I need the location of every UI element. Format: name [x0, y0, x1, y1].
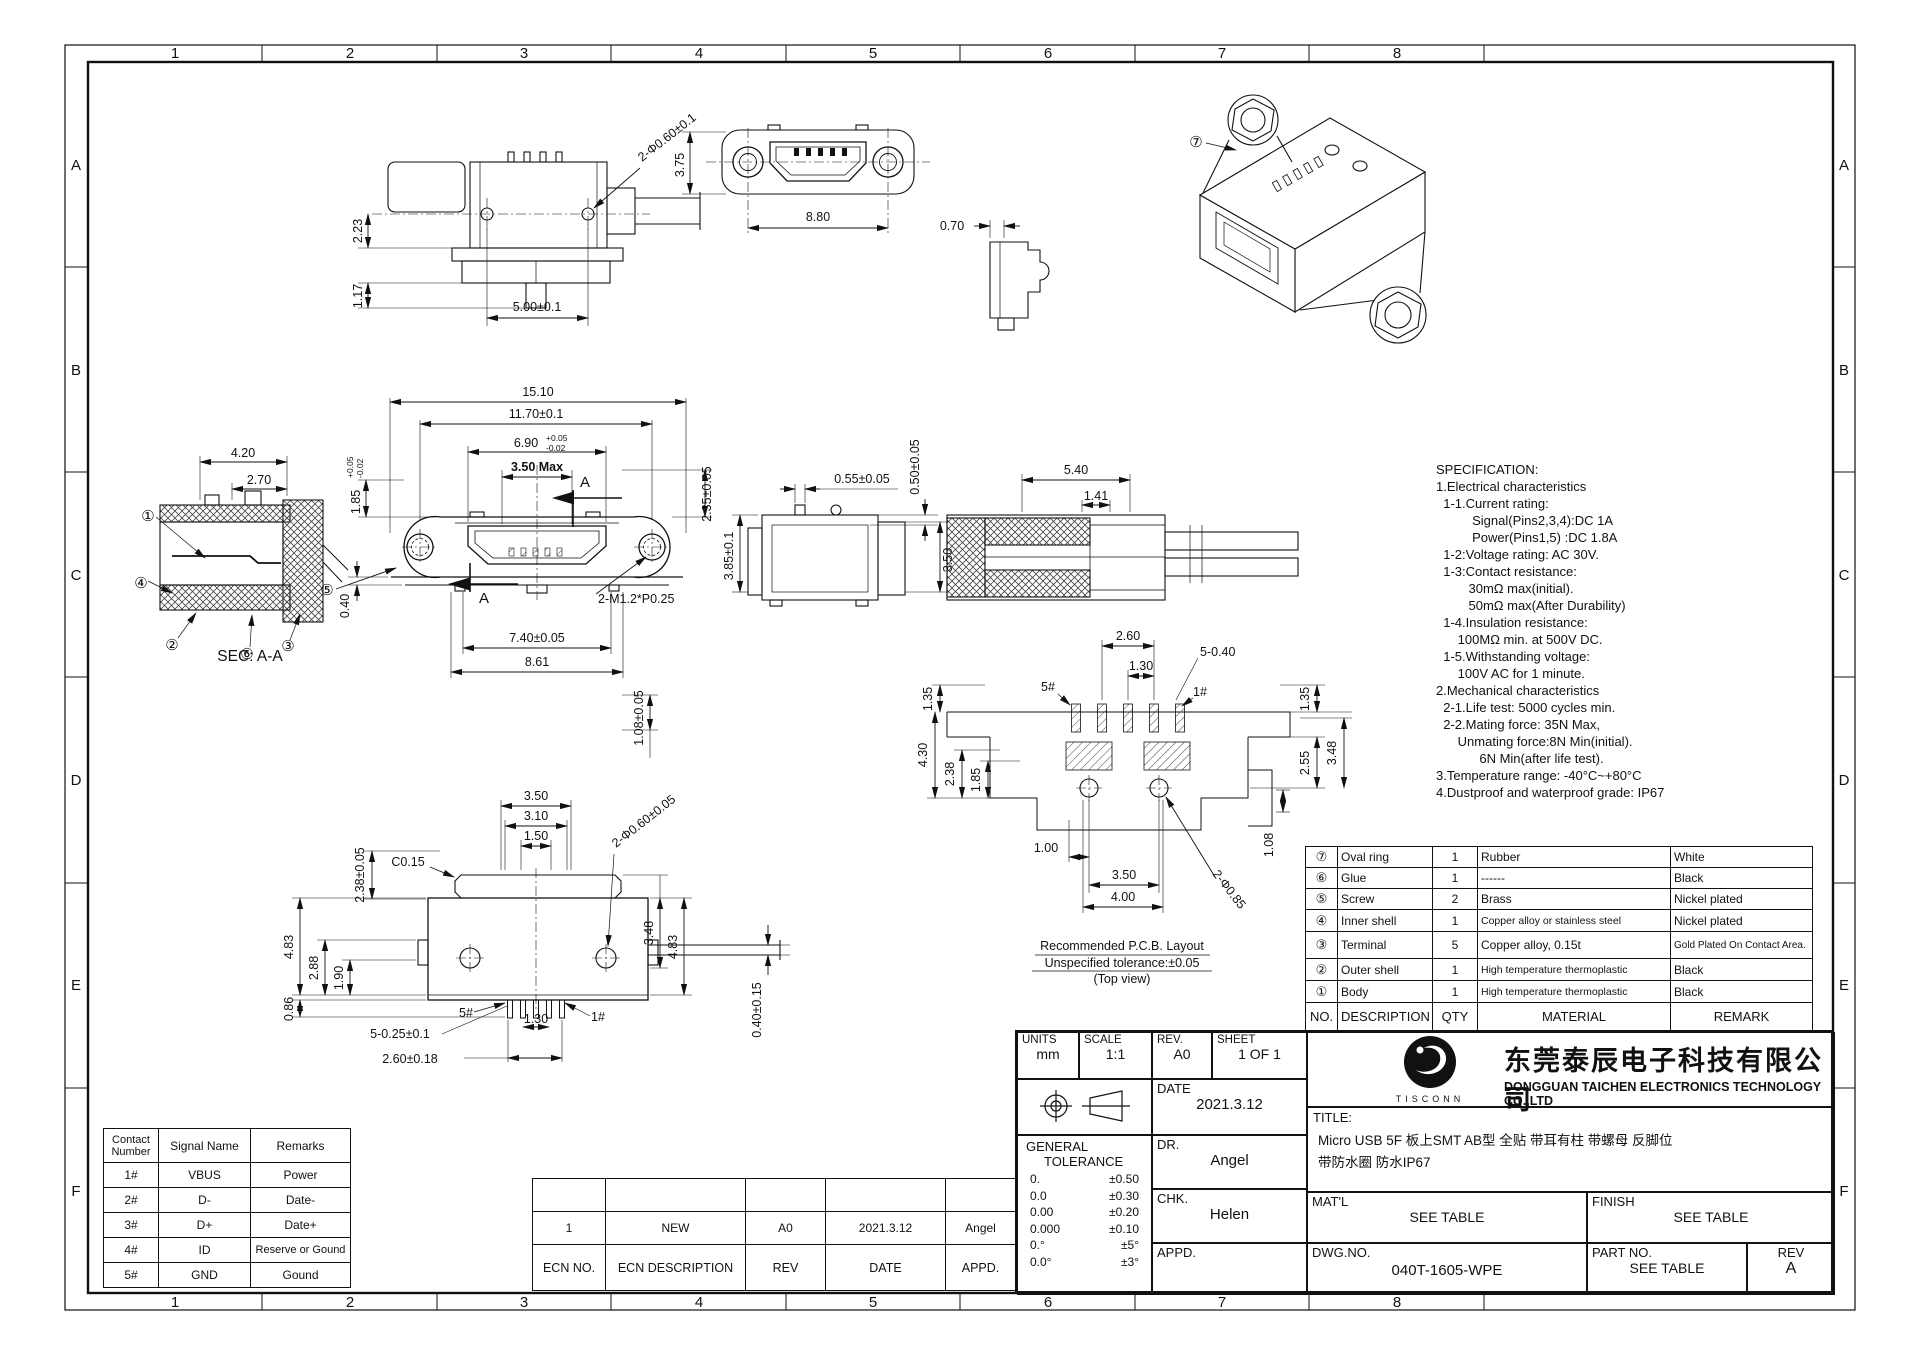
view-caption: (Top view)	[1094, 972, 1151, 986]
dim-label: 11.70±0.1	[509, 407, 564, 421]
grid-col-label: 4	[695, 45, 703, 62]
rev-value: A0	[1153, 1046, 1211, 1062]
dim-label: 1.90	[332, 966, 346, 990]
grid-col-label: 8	[1393, 1294, 1401, 1311]
tolerance-value: ±0.50	[1109, 1171, 1139, 1188]
tolerance-row: 0.0° ±3°	[1018, 1254, 1151, 1271]
spec-line: Power(Pins1,5) :DC 1.8A	[1436, 529, 1846, 546]
spec-line: 1.Electrical characteristics	[1436, 478, 1846, 495]
matl-label: MAT'L	[1308, 1193, 1586, 1209]
bom-cell-description: Terminal	[1338, 932, 1433, 959]
part-no-cell: PART NO. SEE TABLE	[1587, 1243, 1747, 1295]
dim-label: 3.50	[1112, 868, 1136, 882]
view-caption: Recommended P.C.B. Layout	[1040, 939, 1204, 953]
pcb-layout-view	[927, 640, 1352, 971]
ecn-table-grid: 1 NEW A0 2021.3.12 Angel ECN NO. ECN DES…	[532, 1178, 1016, 1291]
bom-cell-remark: Nickel plated	[1671, 889, 1813, 910]
dim-label: 0.70	[940, 219, 964, 233]
bom-cell-description: Oval ring	[1338, 847, 1433, 868]
dim-label: 2-Φ0.85	[1210, 867, 1249, 911]
dim-label: 1.08	[1262, 833, 1276, 857]
spec-line: 1-2:Voltage rating: AC 30V.	[1436, 546, 1846, 563]
title-line1: Micro USB 5F 板上SMT AB型 全贴 带耳有柱 带螺母 反脚位	[1308, 1125, 1834, 1149]
scale-cell: SCALE 1:1	[1079, 1032, 1152, 1079]
dim-label: 2-Φ0.60±0.1	[635, 110, 699, 164]
rev2-label: REV	[1748, 1244, 1834, 1260]
spec-line: 100MΩ min. at 500V DC.	[1436, 631, 1846, 648]
bom-header-qty: QTY	[1433, 1003, 1478, 1031]
logo-text: TISCONN	[1396, 1094, 1465, 1104]
contact-cell-number: 4#	[104, 1238, 159, 1263]
contact-cell-number: 1#	[104, 1163, 159, 1188]
bom-cell-remark: Black	[1671, 868, 1813, 889]
ecn-cell-description: NEW	[606, 1212, 746, 1245]
ecn-header-no: ECN NO.	[533, 1245, 606, 1291]
title-line2: 带防水圈 防水IP67	[1308, 1149, 1834, 1171]
projection-cell	[1017, 1079, 1152, 1135]
dim-label: 2.70	[247, 473, 271, 487]
bom-cell-qty: 1	[1433, 847, 1478, 868]
dim-label: 4.83	[666, 935, 680, 959]
units-value: mm	[1018, 1046, 1078, 1062]
grid-col-label: 8	[1393, 45, 1401, 62]
dim-label: 5.00±0.1	[513, 300, 562, 314]
ecn-cell-rev: A0	[746, 1212, 826, 1245]
side-sect-dims: 5.40 1.41	[1064, 463, 1108, 503]
grid-col-label: 4	[695, 1294, 703, 1311]
bom-table-grid: ⑦ Oval ring 1 Rubber White ⑥ Glue 1 ----…	[1305, 846, 1813, 1031]
grid-col-label: 1	[171, 45, 179, 62]
specification-block: SPECIFICATION: 1.Electrical characterist…	[1436, 461, 1846, 801]
tolerance-value: ±0.30	[1109, 1188, 1139, 1205]
spec-line: 100V AC for 1 minute.	[1436, 665, 1846, 682]
dim-label: 1.08±0.05	[632, 690, 646, 746]
dim-label: 2.60±0.18	[382, 1052, 438, 1066]
dim-label: 5-0.25±0.1	[370, 1027, 430, 1041]
company-logo: TISCONN	[1370, 1034, 1490, 1107]
bom-cell-material: High temperature thermoplastic	[1478, 981, 1671, 1003]
contact-cell-signal: VBUS	[159, 1163, 251, 1188]
table-row: ③ Terminal 5 Copper alloy, 0.15t Gold Pl…	[1306, 932, 1813, 959]
contact-cell-signal: D+	[159, 1213, 251, 1238]
table-row: ④ Inner shell 1 Copper alloy or stainles…	[1306, 910, 1813, 932]
bom-cell-qty: 5	[1433, 932, 1478, 959]
contact-header-number: Contact Number	[104, 1129, 159, 1163]
spec-line: 3.Temperature range: -40°C~+80°C	[1436, 767, 1846, 784]
dim-label: 0.55±0.05	[834, 472, 890, 486]
date-label: DATE	[1153, 1080, 1306, 1096]
grid-row-label: A	[1839, 157, 1849, 174]
spec-line: 1-3:Contact resistance:	[1436, 563, 1846, 580]
contact-cell-remarks: Date-	[251, 1188, 351, 1213]
bom-header-description: DESCRIPTION	[1338, 1003, 1433, 1031]
pin-label: 1#	[1193, 685, 1207, 699]
matl-value: SEE TABLE	[1308, 1209, 1586, 1225]
tolerance-nominal: 0.0	[1030, 1188, 1047, 1205]
contact-header-remarks: Remarks	[251, 1129, 351, 1163]
dim-label: 1.50	[524, 829, 548, 843]
side-mid-dims: 0.55±0.05 0.50±0.05 3.85±0.1 3.50	[722, 439, 955, 580]
table-row	[533, 1179, 1016, 1212]
dim-label: 15.10	[522, 385, 553, 399]
ecn-cell	[746, 1179, 826, 1212]
dim-label: 4.00	[1111, 890, 1135, 904]
units-label: UNITS	[1018, 1033, 1078, 1046]
dim-label: 1.35	[1298, 687, 1312, 711]
grid-row-label: A	[71, 157, 81, 174]
grid-col-label: 6	[1044, 45, 1052, 62]
tolerance-value: ±3°	[1121, 1254, 1139, 1271]
bom-header-material: MATERIAL	[1478, 1003, 1671, 1031]
bom-cell-no: ④	[1306, 910, 1338, 932]
spec-line: 50mΩ max(After Durability)	[1436, 597, 1846, 614]
bom-cell-no: ⑦	[1306, 847, 1338, 868]
bom-cell-no: ⑤	[1306, 889, 1338, 910]
table-row: ⑥ Glue 1 ------ Black	[1306, 868, 1813, 889]
bom-table: ⑦ Oval ring 1 Rubber White ⑥ Glue 1 ----…	[1305, 846, 1813, 1031]
front-main-dims: 15.10 11.70±0.1 6.90 +0.05 -0.02 3.50 Ma…	[320, 385, 714, 746]
pcb-layout-dims: 2.60 1.30 5-0.40 1.35 4.30 2.38 1.85 1.3…	[916, 629, 1339, 986]
pin-label: 5#	[459, 1006, 473, 1020]
chk-label: CHK.	[1153, 1190, 1306, 1206]
dim-label: 2.38	[943, 762, 957, 786]
dwg-no-value: 040T-1605-WPE	[1308, 1262, 1586, 1279]
contact-table: Contact Number Signal Name Remarks 1# VB…	[103, 1128, 351, 1288]
spec-line: Signal(Pins2,3,4):DC 1A	[1436, 512, 1846, 529]
dim-tolerance: -0.02	[355, 458, 365, 478]
dwg-no-cell: DWG.NO. 040T-1605-WPE	[1307, 1243, 1587, 1295]
finish-value: SEE TABLE	[1588, 1209, 1834, 1225]
chk-value: Helen	[1153, 1206, 1306, 1223]
part-no-label: PART NO.	[1588, 1244, 1746, 1260]
contact-cell-number: 2#	[104, 1188, 159, 1213]
dim-label: 5-0.40	[1200, 645, 1235, 659]
tolerance-nominal: 0.00	[1030, 1204, 1053, 1221]
ecn-header-date: DATE	[826, 1245, 946, 1291]
table-row: 5# GND Gound	[104, 1263, 351, 1288]
ref-balloon: ⑦	[1189, 134, 1202, 151]
ecn-header-appd: APPD.	[946, 1245, 1016, 1291]
ref-balloon: ④	[134, 575, 147, 592]
bom-cell-material: ------	[1478, 868, 1671, 889]
general-tolerance-label-1: GENERAL	[1018, 1136, 1151, 1154]
table-header-row: Contact Number Signal Name Remarks	[104, 1129, 351, 1163]
bom-cell-description: Body	[1338, 981, 1433, 1003]
table-row: ② Outer shell 1 High temperature thermop…	[1306, 959, 1813, 981]
ecn-cell	[946, 1179, 1016, 1212]
contact-table-grid: Contact Number Signal Name Remarks 1# VB…	[103, 1128, 351, 1288]
contact-cell-signal: ID	[159, 1238, 251, 1263]
front-top-dims: 3.75 8.80	[673, 153, 830, 224]
table-row: 4# ID Reserve or Gound	[104, 1238, 351, 1263]
table-header-row: NO. DESCRIPTION QTY MATERIAL REMARK	[1306, 1003, 1813, 1031]
dim-label: 2.55	[1298, 751, 1312, 775]
bom-header-no: NO.	[1306, 1003, 1338, 1031]
bom-cell-material: Brass	[1478, 889, 1671, 910]
bottom-view-dims: 3.50 3.10 1.50 C0.15 2-Φ0.60±0.05 2.38±0…	[282, 789, 764, 1066]
bom-cell-material: Copper alloy or stainless steel	[1478, 910, 1671, 932]
bom-cell-qty: 2	[1433, 889, 1478, 910]
dim-label: 3.75	[673, 153, 687, 177]
bom-cell-no: ⑥	[1306, 868, 1338, 889]
units-cell: UNITS mm	[1017, 1032, 1079, 1079]
grid-row-label: E	[71, 977, 81, 994]
dr-cell: DR. Angel	[1152, 1135, 1307, 1189]
pin-label: 5#	[1041, 680, 1055, 694]
contact-cell-remarks: Power	[251, 1163, 351, 1188]
dim-label: 1.30	[524, 1012, 548, 1026]
scale-value: 1:1	[1080, 1046, 1151, 1062]
dim-label: 4.20	[231, 446, 255, 460]
chk-cell: CHK. Helen	[1152, 1189, 1307, 1243]
dim-label: 0.40±0.15	[750, 982, 764, 1038]
table-row: ⑤ Screw 2 Brass Nickel plated	[1306, 889, 1813, 910]
ecn-cell-date: 2021.3.12	[826, 1212, 946, 1245]
tolerance-row: 0.0 ±0.30	[1018, 1188, 1151, 1205]
spec-line: 2-1.Life test: 5000 cycles min.	[1436, 699, 1846, 716]
title-block: UNITS mm SCALE 1:1 REV. A0 SHEET 1 OF 1 …	[1015, 1030, 1833, 1293]
ecn-cell	[826, 1179, 946, 1212]
dim-label: 2-Φ0.60±0.05	[609, 792, 678, 850]
sheet-cell: SHEET 1 OF 1	[1212, 1032, 1307, 1079]
dim-label: C0.15	[391, 855, 424, 869]
ecn-cell	[606, 1179, 746, 1212]
tolerance-value: ±0.20	[1109, 1204, 1139, 1221]
general-tolerance-label-2: TOLERANCE	[1018, 1154, 1151, 1171]
dim-label: 1.41	[1084, 489, 1108, 503]
table-row: ① Body 1 High temperature thermoplastic …	[1306, 981, 1813, 1003]
grid-row-label: E	[1839, 977, 1849, 994]
grid-col-label: 2	[346, 45, 354, 62]
bom-cell-qty: 1	[1433, 868, 1478, 889]
date-value: 2021.3.12	[1153, 1096, 1306, 1113]
dr-label: DR.	[1153, 1136, 1306, 1152]
ecn-header-rev: REV	[746, 1245, 826, 1291]
spec-line: 2-2.Mating force: 35N Max,	[1436, 716, 1846, 733]
dim-label: 1.85	[349, 490, 363, 514]
dim-label: 0.86	[282, 997, 296, 1021]
sheet-label: SHEET	[1213, 1033, 1306, 1046]
grid-row-label: B	[71, 362, 81, 379]
bom-cell-description: Glue	[1338, 868, 1433, 889]
appd-cell: APPD.	[1152, 1243, 1307, 1295]
bom-cell-remark: Black	[1671, 959, 1813, 981]
table-row: 1 NEW A0 2021.3.12 Angel	[533, 1212, 1016, 1245]
view-caption: SEC: A-A	[217, 648, 283, 665]
dim-label: 4.83	[282, 935, 296, 959]
dim-label: 3.48	[1325, 741, 1339, 765]
dim-tolerance: +0.05	[546, 433, 568, 443]
bom-cell-remark: White	[1671, 847, 1813, 868]
grid-col-label: 7	[1218, 1294, 1226, 1311]
bom-cell-description: Outer shell	[1338, 959, 1433, 981]
dim-label: 0.40	[338, 594, 352, 618]
ref-balloon: ⑤	[320, 582, 333, 599]
dr-value: Angel	[1153, 1152, 1306, 1169]
bom-cell-description: Screw	[1338, 889, 1433, 910]
ref-balloon: ②	[165, 637, 178, 654]
dim-label: 3.48	[642, 921, 656, 945]
bom-cell-no: ②	[1306, 959, 1338, 981]
side-small-view	[974, 220, 1049, 330]
section-label: A	[479, 590, 489, 607]
side-sect-view	[947, 474, 1298, 600]
table-header-row: ECN NO. ECN DESCRIPTION REV DATE APPD.	[533, 1245, 1016, 1291]
dim-label: 5.40	[1064, 463, 1088, 477]
bom-cell-qty: 1	[1433, 981, 1478, 1003]
company-name-en: DONGGUAN TAICHEN ELECTRONICS TECHNOLOGY …	[1504, 1080, 1834, 1108]
part-no-value: SEE TABLE	[1588, 1260, 1746, 1276]
grid-col-label: 6	[1044, 1294, 1052, 1311]
contact-cell-remarks: Date+	[251, 1213, 351, 1238]
dim-label: 1.17	[351, 284, 365, 308]
dim-label: 4.30	[916, 743, 930, 767]
ecn-table: 1 NEW A0 2021.3.12 Angel ECN NO. ECN DES…	[532, 1178, 1016, 1291]
dim-label: 3.10	[524, 809, 548, 823]
tolerance-value: ±0.10	[1109, 1221, 1139, 1238]
dim-label: 8.61	[525, 655, 549, 669]
table-row: 3# D+ Date+	[104, 1213, 351, 1238]
dim-label: 3.50	[524, 789, 548, 803]
finish-cell: FINISH SEE TABLE	[1587, 1192, 1835, 1243]
spec-line: 1-1.Current rating:	[1436, 495, 1846, 512]
grid-col-label: 3	[520, 45, 528, 62]
tolerance-nominal: 0.0°	[1030, 1254, 1051, 1271]
title-label: TITLE:	[1308, 1108, 1834, 1125]
contact-cell-remarks: Gound	[251, 1263, 351, 1288]
spec-line: 4.Dustproof and waterproof grade: IP67	[1436, 784, 1846, 801]
bom-cell-qty: 1	[1433, 910, 1478, 932]
rev-label: REV.	[1153, 1033, 1211, 1046]
dim-label: 1.00	[1034, 841, 1058, 855]
tolerance-nominal: 0.	[1030, 1171, 1040, 1188]
dim-label: 1.85	[969, 768, 983, 792]
bom-cell-no: ①	[1306, 981, 1338, 1003]
finish-label: FINISH	[1588, 1193, 1834, 1209]
bom-cell-material: Copper alloy, 0.15t	[1478, 932, 1671, 959]
appd-label: APPD.	[1153, 1244, 1306, 1260]
scale-label: SCALE	[1080, 1033, 1151, 1046]
spec-line: 6N Min(after life test).	[1436, 750, 1846, 767]
bom-header-remark: REMARK	[1671, 1003, 1813, 1031]
contact-header-signal: Signal Name	[159, 1129, 251, 1163]
general-tolerance-cell: GENERAL TOLERANCE 0. ±0.50 0.0 ±0.30 0.0…	[1017, 1135, 1152, 1295]
projection-symbols-icon	[1018, 1080, 1148, 1132]
dim-label: 2.88	[307, 956, 321, 980]
rev2-cell: REV A	[1747, 1243, 1835, 1295]
section-label: A	[580, 474, 590, 491]
grid-row-label: F	[71, 1183, 80, 1200]
company-cell: TISCONN 东莞泰辰电子科技有限公司 DONGGUAN TAICHEN EL…	[1307, 1032, 1835, 1107]
rev2-value: A	[1748, 1260, 1834, 1278]
grid-row-label: C	[71, 567, 82, 584]
dim-label: 1.30	[1129, 659, 1153, 673]
spec-line: 2.Mechanical characteristics	[1436, 682, 1846, 699]
dim-label: 1.35	[921, 687, 935, 711]
dim-label: 2.60	[1116, 629, 1140, 643]
grid-col-label: 2	[346, 1294, 354, 1311]
dim-label: 7.40±0.05	[509, 631, 565, 645]
ref-balloon: ③	[281, 638, 294, 655]
tolerance-nominal: 0.°	[1030, 1237, 1045, 1254]
bom-cell-no: ③	[1306, 932, 1338, 959]
pin-label: 1#	[591, 1010, 605, 1024]
date-cell: DATE 2021.3.12	[1152, 1079, 1307, 1135]
contact-cell-number: 3#	[104, 1213, 159, 1238]
dim-label: 3.85±0.1	[722, 532, 736, 581]
dim-label: 2.23	[351, 219, 365, 243]
contact-cell-signal: D-	[159, 1188, 251, 1213]
contact-cell-signal: GND	[159, 1263, 251, 1288]
ecn-header-description: ECN DESCRIPTION	[606, 1245, 746, 1291]
spec-line: 1-4.Insulation resistance:	[1436, 614, 1846, 631]
table-row: 2# D- Date-	[104, 1188, 351, 1213]
tolerance-row: 0.000 ±0.10	[1018, 1221, 1151, 1238]
dwg-no-label: DWG.NO.	[1308, 1244, 1371, 1260]
dim-label: 0.50±0.05	[908, 439, 922, 495]
tolerance-row: 0. ±0.50	[1018, 1171, 1151, 1188]
bom-cell-remark: Nickel plated	[1671, 910, 1813, 932]
dim-label: 3.50 Max	[511, 460, 563, 474]
dim-label: 2.38±0.05	[353, 847, 367, 903]
spec-line: 30mΩ max(initial).	[1436, 580, 1846, 597]
view-caption: Unspecified tolerance:±0.05	[1045, 956, 1200, 970]
table-row: ⑦ Oval ring 1 Rubber White	[1306, 847, 1813, 868]
dim-label: 2-M1.2*P0.25	[598, 592, 674, 606]
bom-cell-remark: Black	[1671, 981, 1813, 1003]
spec-line: Unmating force:8N Min(initial).	[1436, 733, 1846, 750]
front-main-view	[336, 398, 712, 758]
ecn-cell	[533, 1179, 606, 1212]
ecn-cell-no: 1	[533, 1212, 606, 1245]
bom-cell-material: High temperature thermoplastic	[1478, 959, 1671, 981]
contact-cell-remarks: Reserve or Gound	[251, 1238, 351, 1263]
tolerance-row: 0.° ±5°	[1018, 1237, 1151, 1254]
grid-col-label: 1	[171, 1294, 179, 1311]
grid-col-label: 5	[869, 1294, 877, 1311]
grid-col-label: 7	[1218, 45, 1226, 62]
grid-row-label: D	[71, 772, 82, 789]
dim-label: 2.35±0.05	[700, 466, 714, 522]
title-cell: TITLE: Micro USB 5F 板上SMT AB型 全贴 带耳有柱 带螺…	[1307, 1107, 1835, 1192]
bom-cell-description: Inner shell	[1338, 910, 1433, 932]
contact-cell-number: 5#	[104, 1263, 159, 1288]
dim-tolerance: +0.05	[345, 456, 355, 478]
sheet-value: 1 OF 1	[1213, 1046, 1306, 1062]
grid-col-label: 3	[520, 1294, 528, 1311]
spec-line: 1-5.Withstanding voltage:	[1436, 648, 1846, 665]
tolerance-row: 0.00 ±0.20	[1018, 1204, 1151, 1221]
rev-cell: REV. A0	[1152, 1032, 1212, 1079]
bom-cell-material: Rubber	[1478, 847, 1671, 868]
dim-tolerance: -0.02	[546, 443, 566, 453]
iso-view	[1200, 95, 1426, 343]
grid-row-label: F	[1839, 1183, 1848, 1200]
ecn-cell-appd: Angel	[946, 1212, 1016, 1245]
table-row: 1# VBUS Power	[104, 1163, 351, 1188]
dim-label: 6.90	[514, 436, 538, 450]
dim-label: 8.80	[806, 210, 830, 224]
matl-cell: MAT'L SEE TABLE	[1307, 1192, 1587, 1243]
grid-col-label: 5	[869, 45, 877, 62]
ref-balloon: ①	[141, 508, 154, 525]
spec-line: SPECIFICATION:	[1436, 461, 1846, 478]
side-mid-view	[732, 484, 948, 606]
tolerance-value: ±5°	[1121, 1237, 1139, 1254]
bom-cell-qty: 1	[1433, 959, 1478, 981]
bom-cell-remark: Gold Plated On Contact Area.	[1671, 932, 1813, 959]
grid-row-label: B	[1839, 362, 1849, 379]
